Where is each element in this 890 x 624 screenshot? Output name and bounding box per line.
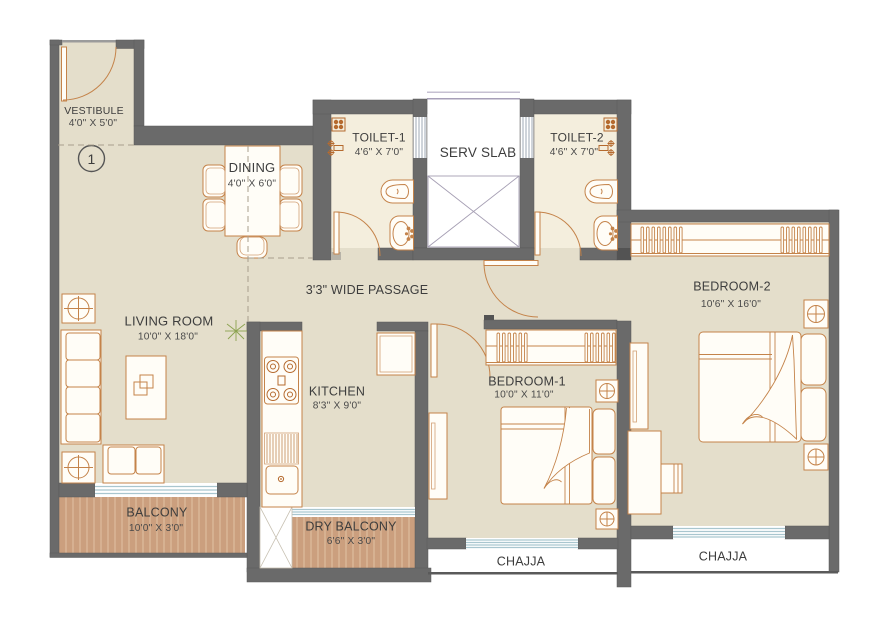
svg-text:BEDROOM-1: BEDROOM-1	[488, 375, 566, 389]
svg-text:DINING: DINING	[229, 160, 276, 175]
svg-text:SERV SLAB: SERV SLAB	[440, 145, 517, 160]
svg-text:10'0" X 3'0": 10'0" X 3'0"	[129, 523, 183, 534]
svg-text:4'6" X 7'0": 4'6" X 7'0"	[550, 147, 599, 158]
svg-text:BALCONY: BALCONY	[126, 506, 188, 520]
svg-text:CHAJJA: CHAJJA	[497, 555, 546, 569]
svg-text:TOILET-1: TOILET-1	[352, 131, 406, 145]
svg-text:1: 1	[88, 151, 96, 167]
svg-text:LIVING ROOM: LIVING ROOM	[125, 314, 214, 329]
svg-text:8'3" X 9'0": 8'3" X 9'0"	[313, 401, 362, 412]
svg-text:VESTIBULE: VESTIBULE	[64, 105, 124, 117]
svg-text:10'0" X 11'0": 10'0" X 11'0"	[494, 390, 554, 401]
svg-text:4'6" X 7'0": 4'6" X 7'0"	[355, 147, 404, 158]
svg-text:4'0" X 5'0": 4'0" X 5'0"	[69, 118, 118, 129]
svg-text:4'0" X 6'0": 4'0" X 6'0"	[228, 179, 277, 190]
svg-text:6'6" X 3'0": 6'6" X 3'0"	[327, 536, 376, 547]
svg-text:TOILET-2: TOILET-2	[550, 131, 604, 145]
svg-text:CHAJJA: CHAJJA	[699, 550, 748, 564]
svg-text:DRY BALCONY: DRY BALCONY	[305, 520, 397, 534]
svg-text:3'3" WIDE PASSAGE: 3'3" WIDE PASSAGE	[306, 283, 429, 297]
svg-text:KITCHEN: KITCHEN	[309, 385, 365, 399]
svg-text:10'0" X 18'0": 10'0" X 18'0"	[138, 332, 198, 343]
svg-text:BEDROOM-2: BEDROOM-2	[693, 280, 771, 294]
svg-text:10'6" X 16'0": 10'6" X 16'0"	[701, 299, 761, 310]
